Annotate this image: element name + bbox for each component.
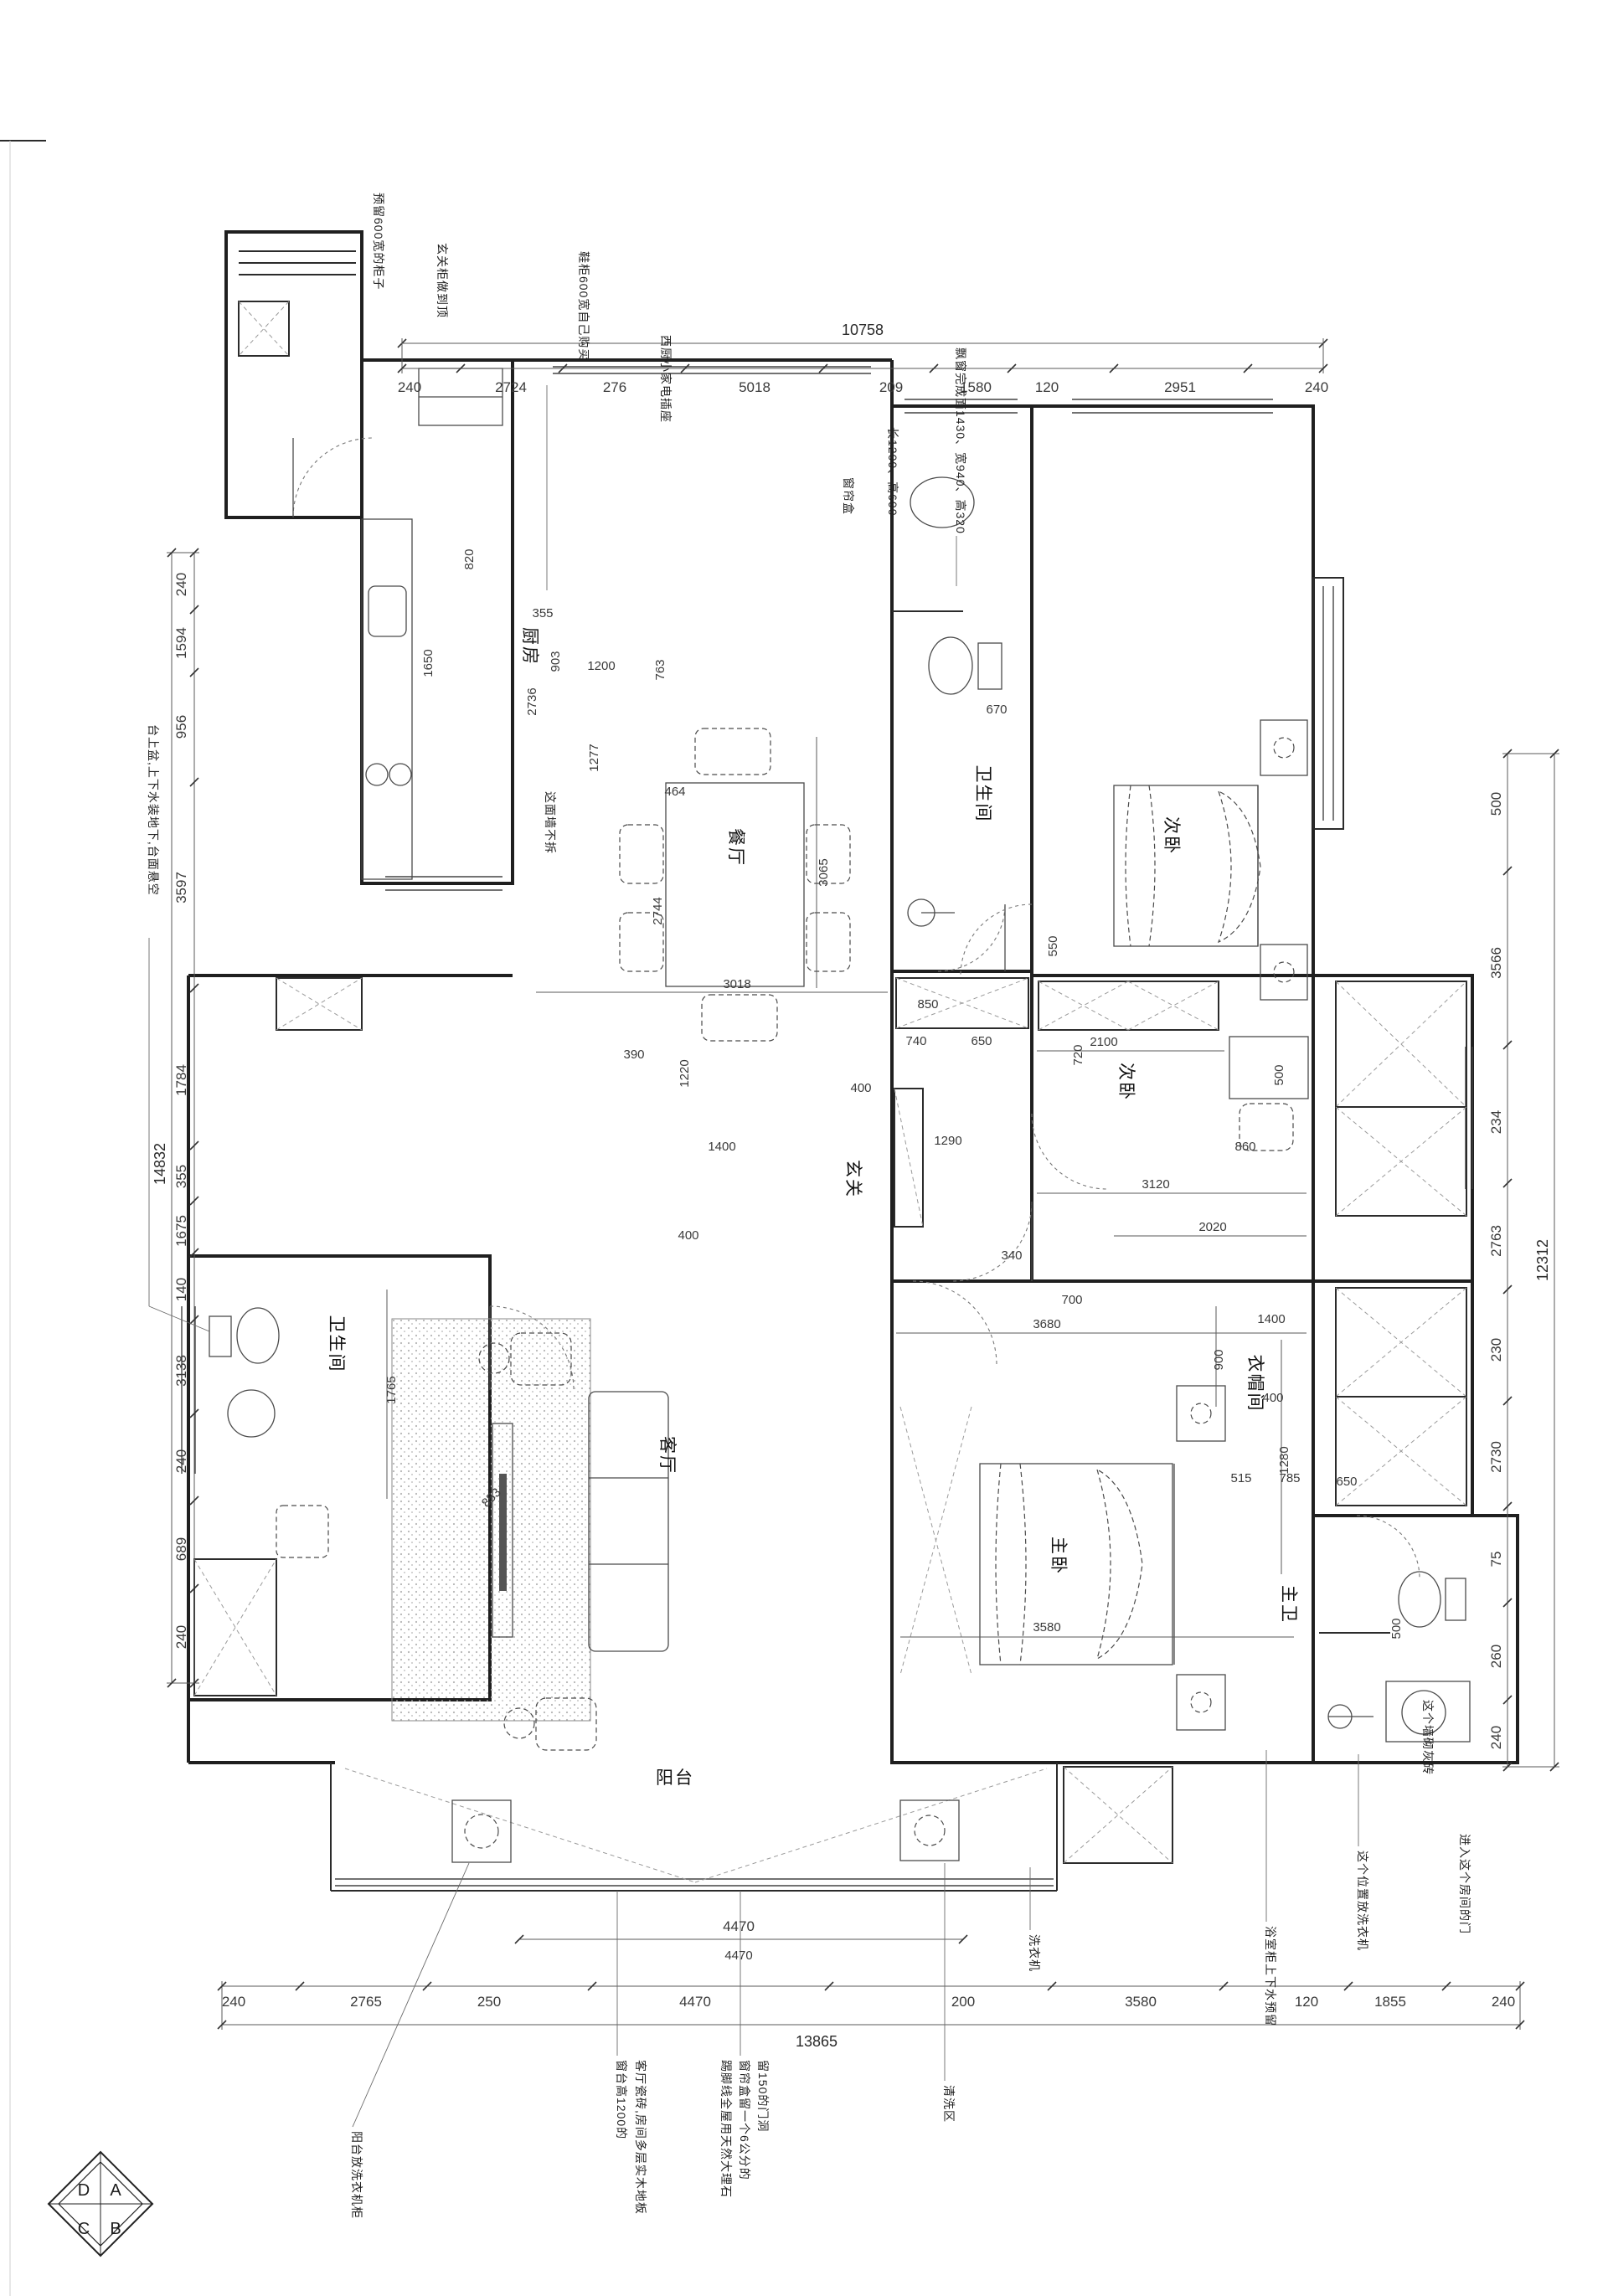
dim-label: 120 xyxy=(1295,1994,1318,2010)
annotation: 清洗区 xyxy=(942,2085,956,2123)
cabinet-corridor xyxy=(896,978,1028,1028)
compass-letter-a: A xyxy=(110,2181,121,2200)
dim-label: 720 xyxy=(1071,1044,1085,1065)
cabinet-right-balcony xyxy=(1064,1767,1172,1863)
dim-label: 1784 xyxy=(173,1064,189,1096)
desk-bedroom3 xyxy=(1229,1037,1308,1151)
dim-label: 230 xyxy=(1488,1338,1504,1362)
dim-label: 1280 xyxy=(1277,1446,1291,1474)
dim-label: 390 xyxy=(623,1048,644,1062)
dim-label: 4470 xyxy=(724,1949,752,1963)
room-label-master-bath: 主卫 xyxy=(1279,1585,1298,1624)
annotation: 窗台高1200的 xyxy=(615,2060,628,2139)
dim-label: 2736 xyxy=(525,687,539,715)
dim-label: 850 xyxy=(917,997,938,1012)
dim-label: 240 xyxy=(1488,1726,1504,1749)
room-label-bath1: 卫生间 xyxy=(973,765,992,823)
dim-label: 860 xyxy=(1234,1140,1255,1154)
annotation: 台上盆,上下水装地下,台面悬空 xyxy=(147,724,160,896)
door-master xyxy=(913,1281,997,1365)
dim-label: 1290 xyxy=(934,1134,961,1148)
dim-label: 240 xyxy=(222,1994,245,2010)
dim-label: 500 xyxy=(1488,792,1504,816)
annotation: 这个墙砌灰砖 xyxy=(1421,1700,1435,1775)
annotation: 阳台放洗衣机柜 xyxy=(350,2131,363,2219)
cabinet-foyer xyxy=(894,1089,923,1227)
dim-label: 3580 xyxy=(1033,1620,1060,1634)
dim-label: 2951 xyxy=(1164,379,1196,395)
annotation: 西厨小家电插座 xyxy=(659,335,673,423)
dim-label: 240 xyxy=(1492,1994,1515,2010)
annotation: 玄关柜做到顶 xyxy=(435,243,449,318)
room-label-closet: 衣帽间 xyxy=(1245,1355,1265,1413)
annotation: 浴室柜上下水预留 xyxy=(1264,1926,1277,2026)
dim-label: 3597 xyxy=(173,872,189,903)
room-label-bath2: 卫生间 xyxy=(327,1315,346,1373)
dim-label: 400 xyxy=(850,1081,871,1095)
door-master-bath xyxy=(1357,1516,1420,1578)
dim-label: 240 xyxy=(398,379,421,395)
dim-label: 1400 xyxy=(1257,1312,1285,1326)
annotation: 这面墙不拆 xyxy=(544,791,557,854)
annotations: 预留600宽的柜子 玄关柜做到顶 鞋柜600宽自己购买 西厨小家电插座 窗帘盒 … xyxy=(147,193,1471,2219)
dim-label: 700 xyxy=(1061,1293,1082,1307)
dim-label: 2020 xyxy=(1198,1220,1226,1234)
dim-label: 1675 xyxy=(173,1215,189,1247)
dim-label: 209 xyxy=(879,379,903,395)
dim-label: 500 xyxy=(1389,1618,1404,1639)
dim-label: 650 xyxy=(971,1034,992,1048)
annotation: 预留600宽的柜子 xyxy=(372,193,385,290)
dim-label: 75 xyxy=(1488,1552,1504,1568)
dim-label: 276 xyxy=(603,379,626,395)
dim-label: 140 xyxy=(173,1278,189,1301)
dim-label: 903 xyxy=(549,651,563,672)
annotation: 鞋柜600宽自己购买 xyxy=(577,251,590,361)
dim-label: 3566 xyxy=(1488,947,1504,979)
wardrobe-right-top xyxy=(1336,981,1466,1216)
bed-master xyxy=(980,1386,1225,1730)
kitchen-counter xyxy=(362,368,502,879)
room-label-balcony: 阳台 xyxy=(656,1768,694,1788)
dim-label: 5018 xyxy=(739,379,770,395)
compass: A B C D xyxy=(49,2152,152,2256)
floor-plan-drawing: 10758 240 2724 276 5018 209 1580 120 295… xyxy=(0,0,1608,2296)
dim-label: 2100 xyxy=(1090,1035,1117,1049)
annotation: 窗帘盒留一个6公分的 xyxy=(738,2060,751,2180)
annotation: 窗帘盒 xyxy=(842,477,855,515)
annotation: 洗衣机 xyxy=(1028,1934,1041,1972)
room-label-bedroom2: 次卧 xyxy=(1162,816,1181,855)
dim-total-bottom: 13865 xyxy=(796,2033,837,2050)
window-balcony xyxy=(335,1768,1054,1886)
bath2-fixtures xyxy=(209,1308,328,1557)
dim-total-right: 12312 xyxy=(1534,1239,1551,1281)
dim-total-left: 14832 xyxy=(152,1143,168,1185)
dim-label: 3680 xyxy=(1033,1317,1060,1331)
wardrobe-closet xyxy=(1336,1288,1466,1506)
annotation: 踢脚线全屋用天然大理石 xyxy=(719,2060,733,2198)
wardrobe-hatches xyxy=(194,978,1466,1863)
dim-label: 2763 xyxy=(1488,1225,1504,1257)
compass-letter-c: C xyxy=(78,2220,90,2238)
dim-label: 400 xyxy=(678,1228,698,1243)
compass-letter-d: D xyxy=(78,2181,90,2200)
room-label-living: 客厅 xyxy=(657,1436,677,1475)
floor-plan-page: 10758 240 2724 276 5018 209 1580 120 295… xyxy=(0,0,1608,2296)
door-entry xyxy=(952,1202,1032,1281)
mirror-master xyxy=(900,1407,971,1675)
page-frame xyxy=(0,141,46,2296)
door-bath1 xyxy=(938,904,1005,971)
dim-label: 200 xyxy=(951,1994,975,2010)
dim-label: 3138 xyxy=(173,1355,189,1387)
dining-table xyxy=(620,728,850,1041)
dim-label: 2744 xyxy=(651,897,665,924)
dim-label: 550 xyxy=(1046,935,1060,956)
dim-label: 1855 xyxy=(1374,1994,1406,2010)
dim-label: 120 xyxy=(1035,379,1059,395)
dim-label: 240 xyxy=(1305,379,1328,395)
dim-label: 3018 xyxy=(723,977,750,991)
dim-label: 464 xyxy=(664,785,685,799)
dim-label: 785 xyxy=(1279,1471,1300,1485)
room-label-dining: 餐厅 xyxy=(726,828,745,867)
windows xyxy=(182,367,1472,1886)
window-bedroom2-bay xyxy=(1323,586,1333,821)
annotation: 这个位置放洗衣机 xyxy=(1356,1851,1369,1951)
shower-bath2 xyxy=(194,1559,276,1696)
living-room-set xyxy=(392,1319,668,1750)
dim-label: 1200 xyxy=(587,659,615,673)
balcony-fixtures xyxy=(452,1800,959,1862)
dim-label: 820 xyxy=(462,548,477,569)
dim-label: 240 xyxy=(173,1625,189,1649)
annotation: 留150的门洞 xyxy=(756,2060,770,2132)
room-label-master: 主卧 xyxy=(1049,1537,1068,1575)
dim-label: 234 xyxy=(1488,1110,1504,1134)
dim-label: 355 xyxy=(532,606,553,620)
dim-label: 740 xyxy=(905,1034,926,1048)
door-bedroom3 xyxy=(1032,1114,1107,1189)
dim-label: 1277 xyxy=(587,744,601,771)
dim-label: 340 xyxy=(1001,1248,1022,1263)
wardrobe-bedroom3 xyxy=(1038,981,1219,1030)
annotation: 飘窗完成面1430、宽940、高320 xyxy=(954,347,967,534)
annotation: 进入这个房间的门 xyxy=(1458,1834,1471,1934)
dim-label: 2724 xyxy=(495,379,527,395)
annotation: 长1200、高600 xyxy=(886,427,899,517)
door-bedroom2 xyxy=(961,904,1032,976)
dim-label: 260 xyxy=(1488,1645,1504,1668)
bed-bedroom2 xyxy=(1114,720,1307,1000)
dim-label: 1400 xyxy=(708,1140,735,1154)
dim-label: 670 xyxy=(986,703,1007,717)
bath1-fixtures xyxy=(908,477,1002,926)
dim-label: 1765 xyxy=(384,1376,399,1403)
dim-label: 1220 xyxy=(678,1059,692,1087)
dim-label: 1650 xyxy=(421,649,435,677)
dim-total-top: 10758 xyxy=(842,322,884,338)
room-label-bedroom3: 次卧 xyxy=(1116,1063,1136,1101)
dim-label: 900 xyxy=(1212,1349,1226,1370)
dim-label: 3580 xyxy=(1125,1994,1157,2010)
dim-label: 500 xyxy=(1272,1064,1286,1085)
room-label-kitchen: 厨房 xyxy=(520,627,539,666)
dim-label: 689 xyxy=(173,1537,189,1561)
dim-label: 1594 xyxy=(173,627,189,659)
annotation: 客厅瓷砖,房间多层实木地板 xyxy=(634,2060,647,2215)
room-label-foyer: 玄关 xyxy=(843,1160,863,1198)
dim-label: 2765 xyxy=(350,1994,382,2010)
master-bath-fixtures xyxy=(1319,1572,1470,1742)
dim-label: 3065 xyxy=(817,858,831,886)
dim-label: 240 xyxy=(173,1449,189,1473)
dim-label: 250 xyxy=(477,1994,501,2010)
dim-label: 650 xyxy=(1336,1475,1357,1489)
compass-letter-b: B xyxy=(110,2220,121,2238)
dim-label: 400 xyxy=(1262,1391,1283,1405)
furniture xyxy=(209,368,1470,1862)
dim-label: 763 xyxy=(653,659,667,680)
dim-label: 4470 xyxy=(723,1918,755,1934)
dim-label: 515 xyxy=(1230,1471,1251,1485)
dim-label: 355 xyxy=(173,1165,189,1188)
dim-label: 3120 xyxy=(1142,1177,1169,1192)
dim-label: 240 xyxy=(173,573,189,596)
dim-label: 4470 xyxy=(679,1994,711,2010)
dim-label: 956 xyxy=(173,715,189,739)
dim-label: 2730 xyxy=(1488,1441,1504,1473)
cabinet-living-top xyxy=(276,978,362,1030)
